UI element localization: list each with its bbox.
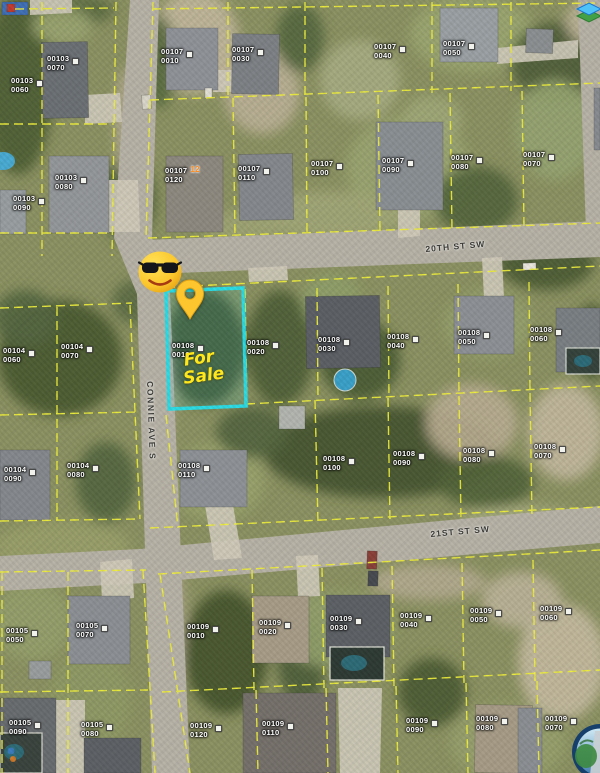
address-point-icon (495, 610, 502, 617)
address-point-icon (336, 163, 343, 170)
parcel-label: 001070030 (232, 46, 254, 63)
parcel-label: 001050090 (9, 719, 31, 736)
parcel-labels-layer: 0010300700010300600010300800010300900010… (0, 0, 600, 773)
address-point-icon (86, 346, 93, 353)
parcel-label: 001080080 (463, 447, 485, 464)
address-point-icon (468, 43, 475, 50)
location-pin-icon (175, 277, 205, 321)
parcel-label: 001070080 (451, 154, 473, 171)
parcel-label: 001090120 (190, 722, 212, 739)
parcel-label: 001040060 (3, 347, 25, 364)
parcel-label: 001090080 (476, 715, 498, 732)
parcel-label: 001090090 (406, 717, 428, 734)
address-point-icon (29, 469, 36, 476)
parcel-label: 001080070 (534, 443, 556, 460)
parcel-label: 001070100 (311, 160, 333, 177)
address-point-icon (343, 339, 350, 346)
parcel-label: 001050050 (6, 627, 28, 644)
address-point-icon (284, 622, 291, 629)
parcel-label: 001080090 (393, 450, 415, 467)
parcel-label: 001090020 (259, 619, 281, 636)
parcel-label: 001080050 (458, 329, 480, 346)
parcel-label: 001050080 (81, 721, 103, 738)
address-point-icon (412, 336, 419, 343)
parcel-label: 001070070 (523, 151, 545, 168)
address-point-icon (272, 342, 279, 349)
parcel-label: 001030080 (55, 174, 77, 191)
parcel-label: 001080100 (323, 455, 345, 472)
parcel-label: 001090050 (470, 607, 492, 624)
address-point-icon (501, 718, 508, 725)
address-point-icon (72, 58, 79, 65)
address-point-icon (203, 465, 210, 472)
address-number-marker: 12 (190, 166, 200, 175)
address-point-icon (555, 329, 562, 336)
address-point-icon (212, 626, 219, 633)
address-point-icon (263, 168, 270, 175)
address-point-icon (31, 630, 38, 637)
address-point-icon (257, 49, 264, 56)
parcel-label: 001070040 (374, 43, 396, 60)
parcel-label: 001070010 (161, 48, 183, 65)
parcel-label: 001040080 (67, 462, 89, 479)
parcel-label: 001080060 (530, 326, 552, 343)
parcel-label: 001080040 (387, 333, 409, 350)
parcel-label: 001090040 (400, 612, 422, 629)
address-point-icon (488, 450, 495, 457)
parcel-label: 001070110 (238, 165, 260, 182)
parcel-label: 001050070 (76, 622, 98, 639)
parcel-label: 00107012012 (165, 167, 187, 184)
address-point-icon (28, 350, 35, 357)
address-point-icon (287, 723, 294, 730)
address-point-icon (92, 465, 99, 472)
address-point-icon (80, 177, 87, 184)
parcel-label: 001090110 (262, 720, 284, 737)
parcel-label: 001070050 (443, 40, 465, 57)
parcel-label: 001070090 (382, 157, 404, 174)
address-point-icon (36, 80, 43, 87)
address-point-icon (215, 725, 222, 732)
address-point-icon (34, 722, 41, 729)
address-point-icon (399, 46, 406, 53)
satellite-parcel-map: 0010300700010300600010300800010300900010… (0, 0, 600, 773)
globe-aerial-logo (566, 722, 600, 773)
parcel-label: 001030090 (13, 195, 35, 212)
parcel-label: 001090060 (540, 605, 562, 622)
parcel-label: 001080020 (247, 339, 269, 356)
address-point-icon (38, 198, 45, 205)
parcel-label: 001040090 (4, 466, 26, 483)
address-point-icon (476, 157, 483, 164)
address-point-icon (565, 608, 572, 615)
address-point-icon (431, 720, 438, 727)
parcel-label: 001090070 (545, 715, 567, 732)
address-point-icon (407, 160, 414, 167)
address-point-icon (106, 724, 113, 731)
address-point-icon (348, 458, 355, 465)
address-point-icon (186, 51, 193, 58)
parcel-label: 001090010 (187, 623, 209, 640)
address-point-icon (483, 332, 490, 339)
address-point-icon (559, 446, 566, 453)
parcel-label: 001030060 (11, 77, 33, 94)
address-point-icon (548, 154, 555, 161)
address-point-icon (355, 618, 362, 625)
for-sale-annotation: For Sale (183, 347, 226, 388)
parcel-label: 001080110 (178, 462, 200, 479)
parcel-label: 001080030 (318, 336, 340, 353)
address-point-icon (425, 615, 432, 622)
parcel-label: 001090030 (330, 615, 352, 632)
address-point-icon (418, 453, 425, 460)
address-point-icon (101, 625, 108, 632)
map-layers-icon (572, 0, 600, 26)
parcel-label: 001030070 (47, 55, 69, 72)
parcel-label: 001040070 (61, 343, 83, 360)
